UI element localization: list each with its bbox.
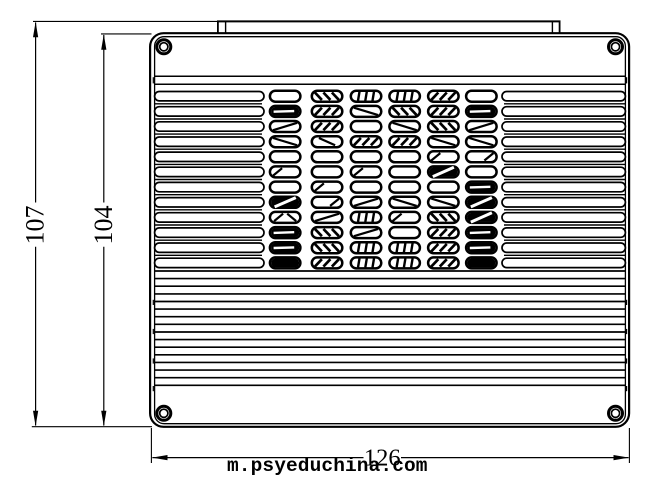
- svg-text:107: 107: [21, 206, 50, 245]
- svg-text:104: 104: [89, 206, 118, 245]
- svg-text:m.psyeduchina.com: m.psyeduchina.com: [227, 455, 428, 477]
